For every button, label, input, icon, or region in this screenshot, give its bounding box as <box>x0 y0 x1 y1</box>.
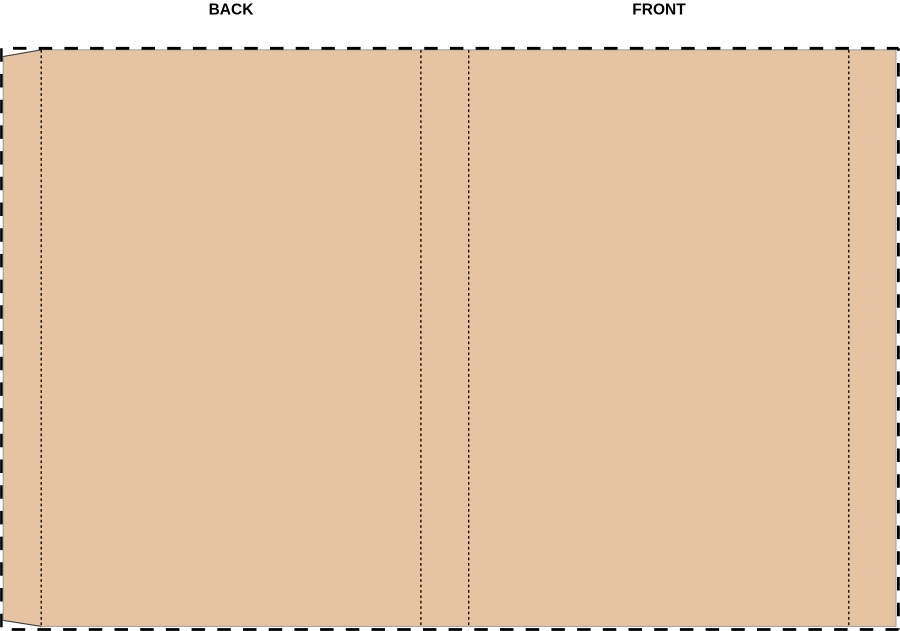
svg-text:FRONT: FRONT <box>632 2 686 19</box>
svg-text:BACK: BACK <box>209 2 255 19</box>
